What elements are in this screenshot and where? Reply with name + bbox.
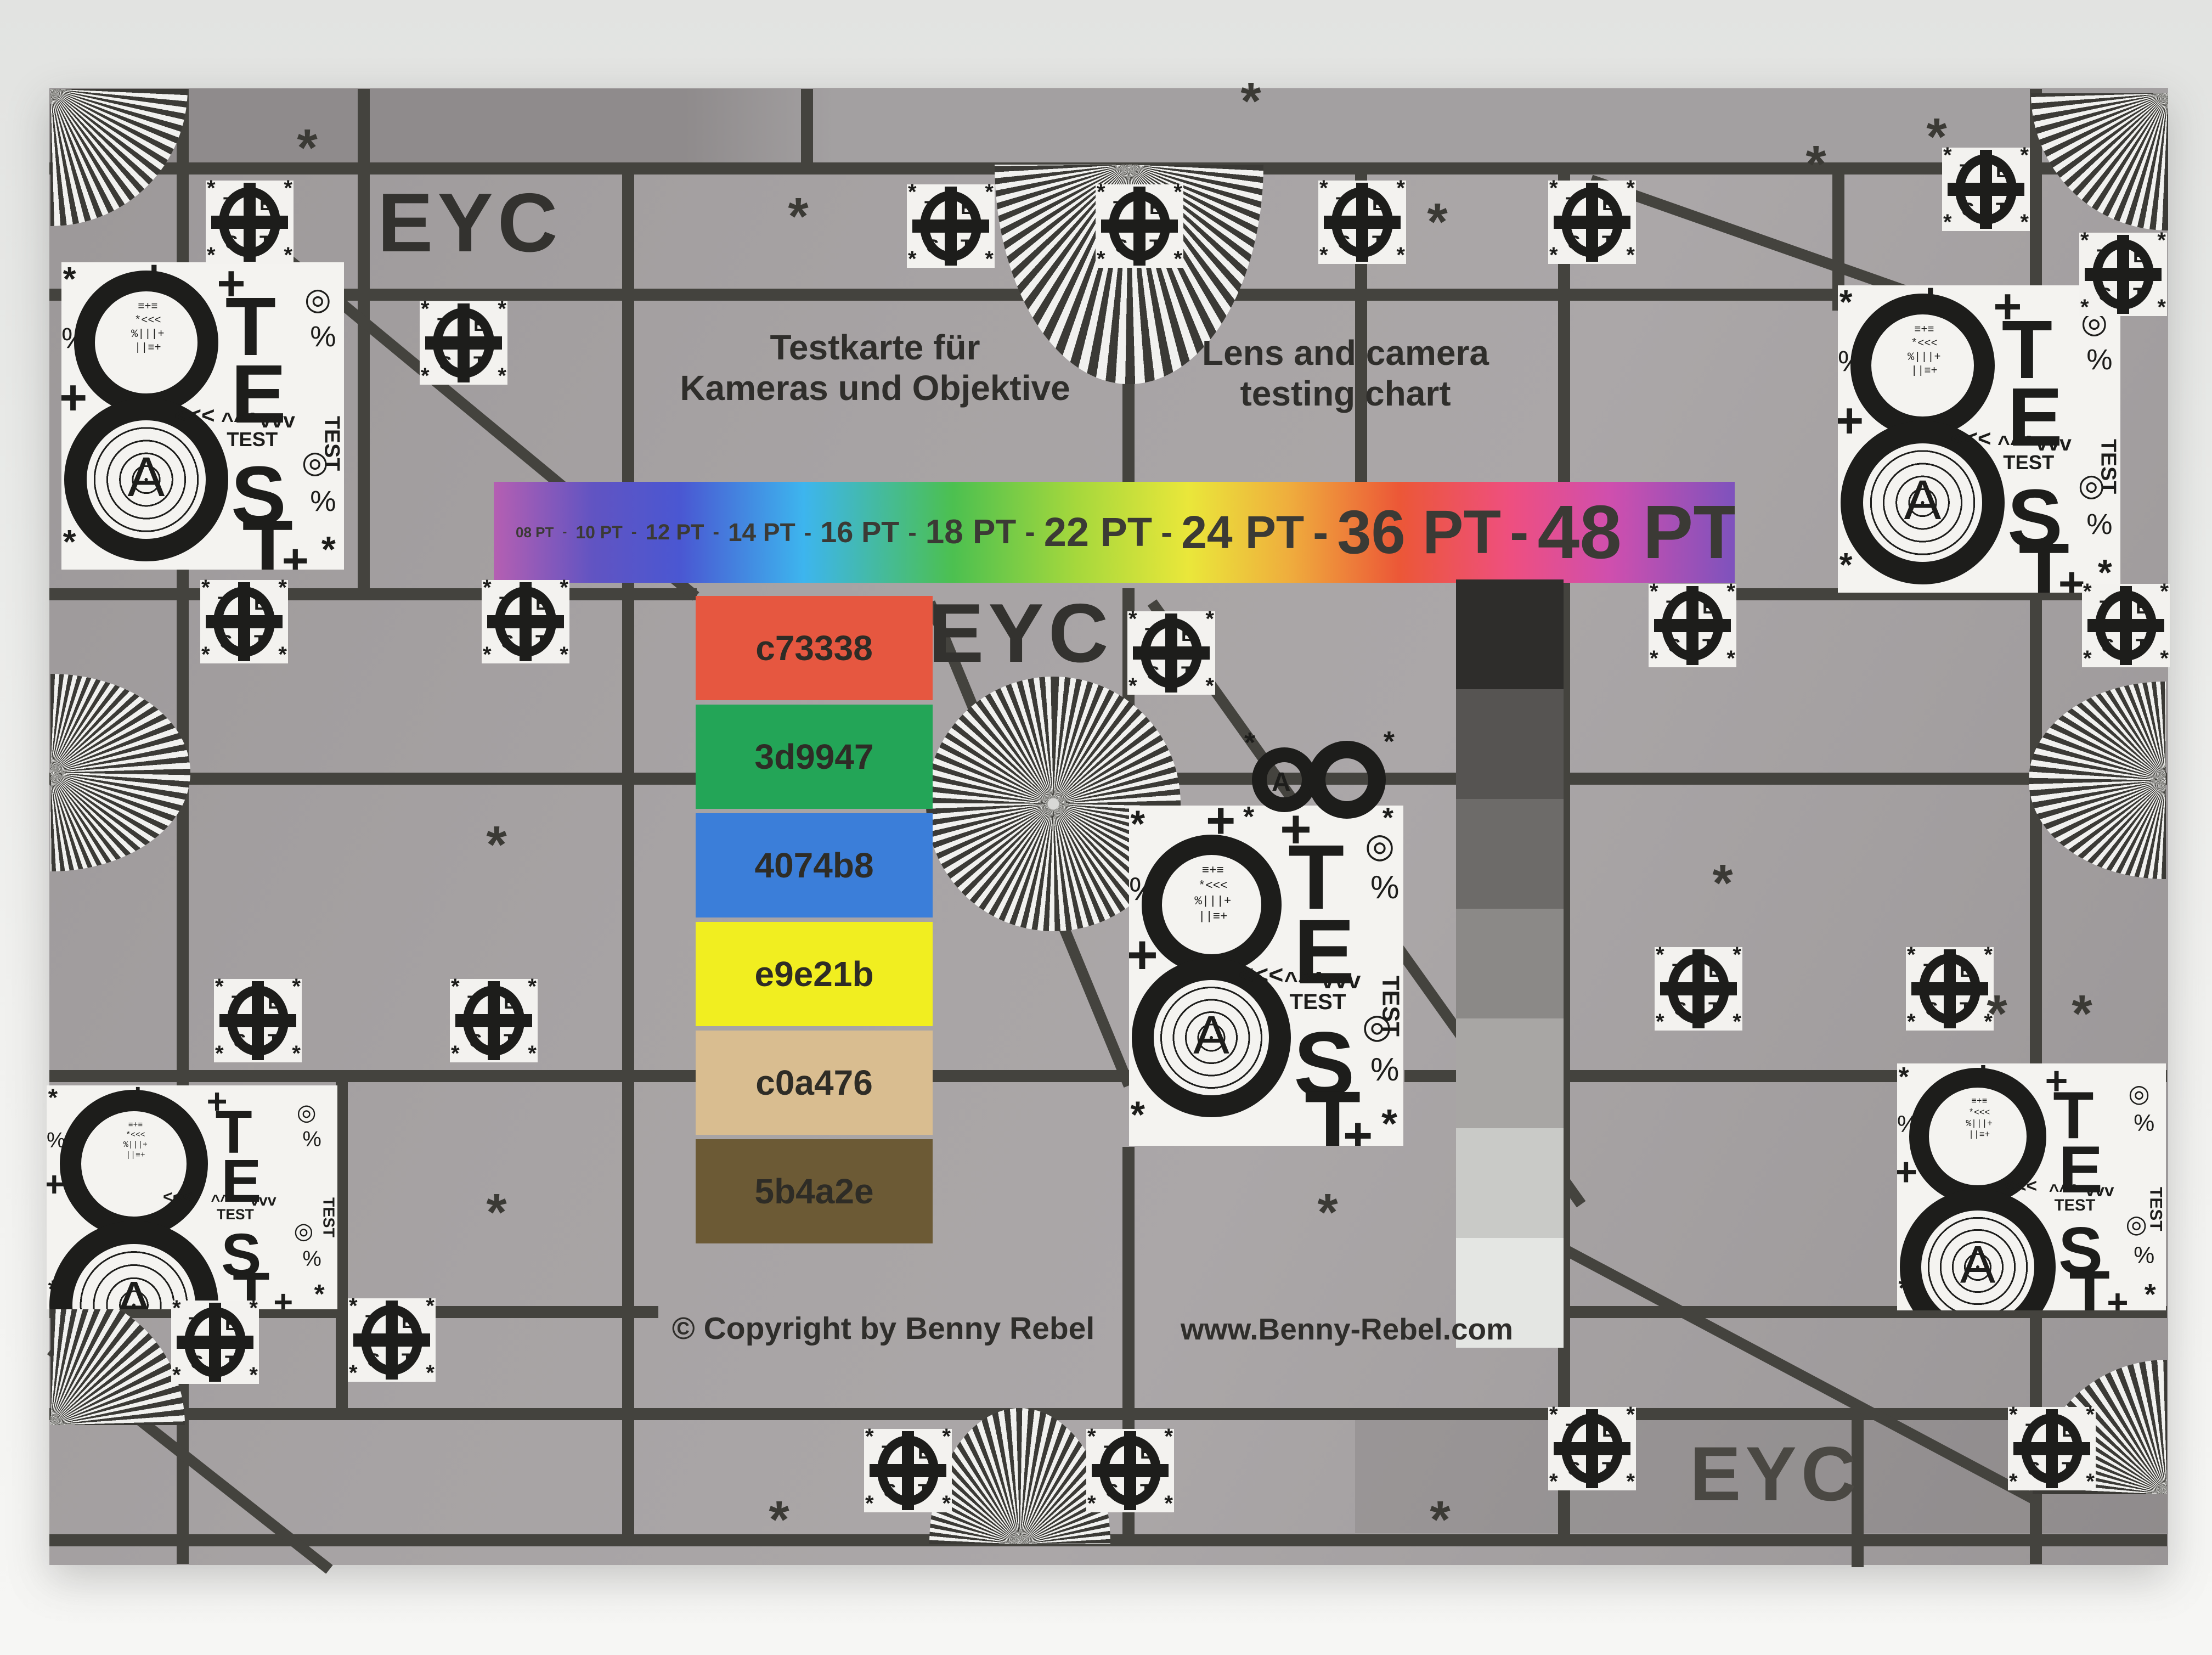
test-circle-marker: TEST**** [2079, 233, 2167, 316]
block-glyph: % [2134, 1112, 2154, 1135]
marker-asterisk: * [215, 976, 224, 998]
marker-asterisk: * [1173, 248, 1182, 270]
grid-line-horizontal [49, 1070, 1130, 1082]
pt-size-label: 24 PT [1181, 509, 1304, 555]
asterisk-mark: * [1240, 75, 1261, 128]
marker-cross-icon [1324, 216, 1401, 229]
title-english-line1: Lens and camera [1097, 333, 1594, 373]
marker-letter: T [1181, 664, 1193, 683]
resolution-scribbles: ≡+≡*<<<%|||+||≡+ [1877, 323, 1971, 379]
eyc-label-top-left: EYC [377, 181, 562, 264]
marker-asterisk: * [528, 976, 537, 998]
test-circle-marker: TEST**** [864, 1429, 952, 1512]
marker-asterisk: * [908, 181, 917, 203]
marker-cross-icon [177, 1336, 253, 1349]
marker-cross-icon [206, 615, 283, 628]
marker-letter: T [232, 993, 243, 1012]
marker-letter: T [2097, 247, 2108, 266]
block-glyph: * [1381, 1104, 1397, 1144]
marker-asterisk: * [215, 1043, 224, 1065]
marker-asterisk: * [1128, 608, 1137, 630]
marker-letter: E [1702, 598, 1715, 617]
marker-cross-icon [1101, 219, 1178, 233]
marker-letter: E [1602, 1421, 1615, 1440]
marker-asterisk: * [292, 1043, 301, 1065]
block-glyph: + [61, 373, 87, 423]
test-circle-marker: TEST**** [1086, 1429, 1174, 1512]
marker-asterisk: * [284, 244, 292, 266]
small-8-asterisk: * [1383, 802, 1393, 835]
pt-separator: - [1313, 509, 1328, 555]
marker-letter: E [2136, 598, 2148, 617]
pt-size-label: 14 PT [728, 520, 795, 545]
letter-a: A [128, 445, 165, 509]
resolution-block-8: *%+*+≡+≡*<<<%|||+||≡+A<<<+T◎%E^^^vvvTEST… [1897, 1063, 2166, 1310]
resolution-scribbles: ≡+≡*<<<%|||+||≡+ [1167, 863, 1259, 925]
marker-asterisk: * [1549, 1404, 1558, 1426]
block-glyph: % [302, 1129, 321, 1151]
marker-cross-icon [1911, 982, 1988, 995]
grayscale-step [1456, 579, 1564, 689]
marker-letter: T [961, 237, 972, 256]
marker-cross-icon [2087, 619, 2164, 632]
block-glyph: ◎ [2128, 1081, 2149, 1106]
block-glyph: TEST [1290, 991, 1346, 1013]
block-glyph: * [2145, 1280, 2156, 1309]
pt-size-label: 10 PT [575, 523, 622, 541]
block-glyph: * [321, 531, 336, 568]
marker-asterisk: * [292, 976, 301, 998]
small-8-letter-a: A [1272, 767, 1291, 797]
block-glyph: % [302, 1249, 321, 1270]
test-circle-marker: TEST**** [907, 184, 995, 268]
block-glyph: % [1370, 1054, 1399, 1087]
marker-letter: T [1708, 1000, 1720, 1018]
test-circle-marker: TEST**** [1649, 584, 1736, 667]
pt-separator: - [562, 526, 567, 539]
pt-size-label: 08 PT [516, 525, 554, 539]
color-swatch: c73338 [696, 596, 933, 700]
block-glyph: <<< [174, 404, 215, 427]
marker-asterisk: * [1726, 581, 1735, 603]
website-text: www.Benny-Rebel.com [1073, 1311, 1621, 1347]
block-glyph: <<< [2005, 1177, 2037, 1196]
resolution-block-8: *%+*+≡+≡*<<<%|||+||≡+A<<<+T◎%E^^^vvvTEST… [1838, 285, 2120, 593]
marker-cross-icon [1948, 183, 2024, 196]
marker-letter: T [225, 1353, 236, 1372]
test-circle-marker: TEST**** [1127, 611, 1215, 695]
marker-cross-icon [353, 1333, 430, 1347]
marker-asterisk: * [1205, 675, 1214, 697]
marker-letter: S [1962, 200, 1974, 219]
vertical-test-word: TEST [321, 416, 342, 471]
marker-asterisk: * [2083, 648, 2092, 669]
marker-asterisk: * [498, 365, 506, 387]
marker-asterisk: * [1319, 177, 1328, 199]
marker-asterisk: * [1396, 177, 1405, 199]
asterisk-mark: * [1427, 196, 1447, 249]
pt-separator: - [1025, 517, 1035, 548]
marker-asterisk: * [1128, 675, 1137, 697]
marker-cross-icon [1654, 619, 1731, 632]
marker-asterisk: * [1319, 244, 1328, 266]
block-glyph: ◎ [2126, 1212, 2147, 1236]
small-8-loop [1308, 741, 1386, 819]
marker-letter: T [1602, 233, 1613, 252]
marker-cross-icon [912, 219, 989, 233]
block-glyph: % [310, 487, 336, 516]
marker-asterisk: * [1549, 177, 1558, 199]
small-8-asterisk: * [1244, 727, 1255, 759]
marker-letter: S [234, 1032, 246, 1050]
marker-letter: T [1702, 637, 1714, 655]
marker-letter: S [470, 1032, 482, 1050]
test-circle-marker: TEST**** [171, 1301, 259, 1384]
marker-letter: S [1115, 237, 1128, 256]
block-glyph: TEST [217, 1207, 254, 1222]
marker-asterisk: * [1650, 581, 1658, 603]
marker-letter: E [225, 1315, 238, 1333]
title-german: Testkarte für Kameras und Objektive [625, 327, 1125, 408]
marker-cross-icon [219, 1014, 296, 1027]
marker-asterisk: * [1087, 1493, 1096, 1515]
marker-asterisk: * [1626, 1404, 1635, 1426]
block-glyph: + [1343, 1110, 1373, 1146]
test-circle-marker: TEST**** [1906, 947, 1994, 1031]
marker-letter: T [2025, 1421, 2037, 1440]
block-glyph: ◎ [304, 284, 331, 314]
test-circle-marker: TEST**** [200, 580, 288, 663]
color-swatch: 5b4a2e [696, 1139, 933, 1243]
marker-asterisk: * [985, 181, 994, 203]
marker-letter: S [225, 233, 238, 252]
marker-asterisk: * [349, 1295, 358, 1317]
marker-cross-icon [2013, 1442, 2090, 1455]
marker-letter: S [191, 1353, 204, 1372]
block-glyph: + [282, 537, 309, 570]
marker-asterisk: * [426, 1295, 435, 1317]
marker-cross-icon [2085, 268, 2162, 281]
marker-letter: T [1672, 961, 1684, 980]
swatch-hex-label: 3d9947 [754, 736, 873, 777]
pt-separator: - [1161, 515, 1172, 550]
marker-letter: T [1104, 1443, 1115, 1462]
block-glyph: + [2058, 560, 2085, 593]
marker-asterisk: * [172, 1364, 181, 1386]
marker-asterisk: * [249, 1364, 258, 1386]
title-english: Lens and camera testing chart [1097, 333, 1594, 414]
marker-letter: E [918, 1443, 930, 1462]
marker-asterisk: * [201, 644, 210, 666]
color-swatch: c0a476 [696, 1031, 933, 1135]
asterisk-mark: * [486, 1186, 506, 1239]
marker-asterisk: * [2080, 296, 2089, 318]
marker-asterisk: * [172, 1297, 181, 1319]
marker-letter: T [1923, 961, 1935, 980]
marker-letter: E [1708, 961, 1721, 980]
marker-asterisk: * [1173, 181, 1182, 203]
marker-asterisk: * [249, 1297, 258, 1319]
marker-asterisk: * [284, 177, 292, 199]
pt-size-label: 18 PT [926, 515, 1016, 549]
block-glyph: * [1839, 548, 1853, 582]
block-glyph: * [63, 262, 76, 296]
grayscale-step [1456, 909, 1564, 1018]
marker-letter: S [2028, 1460, 2040, 1478]
marker-asterisk: * [1733, 944, 1741, 966]
grayscale-step [1456, 1018, 1564, 1128]
swatch-hex-label: 5b4a2e [754, 1171, 873, 1212]
block-glyph: <<< [1239, 962, 1283, 988]
eyc-label-center: EYC [928, 592, 1113, 675]
marker-asterisk: * [1549, 244, 1558, 266]
block-glyph: + [273, 1286, 293, 1309]
marker-letter: T [1996, 200, 2007, 219]
block-glyph: * [1131, 806, 1145, 843]
marker-asterisk: * [278, 577, 287, 599]
resolution-block-8: *%+*+≡+≡*<<<%|||+||≡+A<<<+T◎%E^^^vvvTEST… [61, 262, 344, 570]
marker-letter: T [1113, 199, 1125, 217]
grid-line-horizontal [49, 1408, 2167, 1420]
marker-letter: E [402, 1313, 414, 1331]
marker-asterisk: * [451, 1043, 460, 1065]
marker-letter: T [2062, 1460, 2073, 1478]
swatch-hex-label: c73338 [755, 628, 873, 668]
grayscale-step [1456, 689, 1564, 799]
marker-asterisk: * [278, 644, 287, 666]
test-circle-marker: TEST**** [2008, 1407, 2096, 1490]
marker-asterisk: * [528, 1043, 537, 1065]
marker-asterisk: * [985, 248, 994, 270]
marker-letter: S [927, 237, 939, 256]
block-glyph: * [1898, 1063, 1909, 1091]
test-circle-marker: TEST**** [1655, 947, 1742, 1031]
marker-letter: T [254, 633, 266, 651]
marker-asterisk: * [2160, 581, 2169, 603]
marker-letter: T [2133, 285, 2145, 304]
vertical-test-word: TEST [320, 1197, 336, 1237]
test-circle-marker: TEST**** [1548, 1407, 1636, 1490]
block-glyph: * [1839, 285, 1853, 319]
marker-letter: S [1338, 233, 1351, 252]
marker-letter: T [1140, 1482, 1152, 1500]
block-glyph: % [2086, 345, 2112, 374]
marker-asterisk: * [349, 1362, 358, 1384]
marker-letter: E [1372, 195, 1385, 213]
marker-letter: T [437, 316, 449, 334]
marker-letter: S [1926, 1000, 1938, 1018]
block-glyph: % [310, 322, 336, 351]
letter-a: A [1193, 1004, 1229, 1066]
block-glyph: * [314, 1281, 325, 1308]
marker-asterisk: * [865, 1493, 874, 1515]
marker-letter: E [1149, 199, 1162, 217]
marker-cross-icon [487, 615, 564, 628]
pt-separator: - [1510, 504, 1528, 561]
marker-letter: T [268, 1032, 279, 1050]
marker-letter: S [1674, 1000, 1687, 1018]
marker-asterisk: * [1087, 1426, 1096, 1448]
grid-line-vertical [801, 89, 813, 166]
block-glyph: * [1131, 1096, 1145, 1134]
marker-cross-icon [870, 1464, 946, 1477]
grayscale-step [1456, 1128, 1564, 1238]
concentric-rings-a: A [1159, 986, 1263, 1090]
marker-letter: T [259, 233, 271, 252]
concentric-rings-a: A [1869, 449, 1977, 556]
marker-letter: E [504, 993, 516, 1012]
marker-cross-icon [1133, 646, 1210, 660]
block-glyph: % [2134, 1244, 2154, 1268]
marker-letter: T [882, 1443, 893, 1462]
marker-asterisk: * [483, 577, 492, 599]
asterisk-mark: * [1926, 111, 1946, 164]
marker-letter: E [1960, 961, 1972, 980]
marker-letter: E [1181, 626, 1194, 644]
test-circle-marker: TEST**** [214, 979, 302, 1062]
marker-letter: T [918, 1482, 929, 1500]
marker-letter: S [1568, 1460, 1581, 1478]
marker-asterisk: * [207, 177, 216, 199]
marker-asterisk: * [1396, 244, 1405, 266]
pt-separator: - [631, 524, 637, 541]
marker-asterisk: * [207, 244, 216, 266]
marker-letter: T [2136, 637, 2147, 655]
letter-a: A [1960, 1234, 1996, 1295]
marker-letter: S [439, 354, 452, 373]
marker-asterisk: * [560, 577, 568, 599]
marker-asterisk: * [421, 365, 430, 387]
marker-cross-icon [1660, 982, 1737, 995]
marker-asterisk: * [908, 248, 917, 270]
marker-asterisk: * [1626, 1471, 1635, 1493]
marker-asterisk: * [1656, 944, 1664, 966]
marker-asterisk: * [1943, 211, 1952, 233]
marker-asterisk: * [1097, 181, 1105, 203]
marker-asterisk: * [2020, 211, 2029, 233]
marker-letter: T [1145, 626, 1156, 644]
marker-letter: E [268, 993, 280, 1012]
marker-letter: T [535, 633, 547, 651]
marker-letter: T [1602, 1460, 1613, 1478]
pt-separator: - [908, 520, 917, 545]
asterisk-mark: * [1805, 138, 1826, 191]
marker-letter: E [535, 594, 548, 613]
block-glyph: TEST [227, 430, 278, 449]
block-glyph: + [2107, 1285, 2128, 1310]
marker-asterisk: * [2160, 648, 2169, 669]
marker-letter: S [2099, 285, 2112, 304]
marker-cross-icon [1554, 216, 1630, 229]
block-glyph: ◎ [294, 1220, 314, 1242]
marker-letter: T [223, 195, 235, 213]
marker-letter: T [365, 1313, 377, 1331]
marker-letter: T [1960, 162, 1971, 181]
asterisk-mark: * [486, 819, 506, 871]
pt-size-label: 36 PT [1337, 502, 1501, 563]
marker-cross-icon [425, 336, 502, 350]
marker-letter: E [259, 195, 272, 213]
block-glyph: ◎ [297, 1101, 317, 1124]
marker-asterisk: * [2086, 1471, 2095, 1493]
eyc-label-bottom-right: EYC [1690, 1436, 1861, 1512]
marker-letter: T [1336, 195, 1347, 213]
marker-cross-icon [1554, 1442, 1630, 1455]
small-8-figure: A**** [1252, 735, 1389, 826]
grayscale-step [1456, 799, 1564, 909]
marker-letter: T [504, 1032, 515, 1050]
resolution-block-8: *%+*+≡+≡*<<<%|||+||≡+A<<<+T◎%E^^^vvvTEST… [47, 1085, 337, 1309]
marker-asterisk: * [2080, 229, 2089, 251]
digit-8-top-loop [60, 1090, 208, 1238]
marker-letter: T [218, 594, 229, 613]
marker-asterisk: * [2157, 296, 2166, 318]
color-swatch: 3d9947 [696, 705, 933, 809]
marker-asterisk: * [2009, 1404, 2018, 1426]
block-glyph: + [1838, 396, 1864, 446]
pt-separator: - [713, 523, 719, 542]
letter-a: A [1904, 468, 1942, 532]
letter-a: A [115, 1269, 153, 1309]
marker-asterisk: * [1626, 244, 1635, 266]
test-circle-marker: TEST**** [206, 181, 294, 264]
marker-asterisk: * [1733, 1011, 1741, 1033]
color-swatch: 4074b8 [696, 813, 933, 917]
block-glyph: <<< [163, 1189, 193, 1206]
title-german-line1: Testkarte für [625, 327, 1125, 368]
marker-asterisk: * [1205, 608, 1214, 630]
test-circle-marker: TEST**** [348, 1298, 436, 1382]
marker-letter: E [473, 316, 486, 334]
marker-letter: E [254, 594, 267, 613]
marker-letter: S [1668, 637, 1681, 655]
marker-letter: S [368, 1351, 380, 1370]
marker-letter: T [924, 199, 936, 217]
resolution-scribbles: ≡+≡*<<<%|||+||≡+ [101, 300, 195, 356]
grid-line-vertical [358, 89, 370, 588]
marker-letter: S [1147, 664, 1160, 683]
marker-asterisk: * [426, 1362, 435, 1384]
marker-letter: E [2062, 1421, 2074, 1440]
marker-letter: E [1602, 195, 1615, 213]
marker-letter: T [467, 993, 479, 1012]
marker-letter: E [1140, 1443, 1153, 1462]
marker-letter: S [220, 633, 233, 651]
marker-asterisk: * [1656, 1011, 1664, 1033]
resolution-scribbles: ≡+≡*<<<%|||+||≡+ [87, 1121, 184, 1161]
marker-letter: T [1566, 195, 1577, 213]
marker-letter: T [473, 354, 485, 373]
marker-letter: S [1568, 233, 1581, 252]
marker-asterisk: * [1164, 1426, 1173, 1448]
pt-size-label: 12 PT [646, 521, 704, 543]
marker-asterisk: * [2086, 1404, 2095, 1426]
marker-asterisk: * [1907, 1011, 1916, 1033]
font-size-bar: 08 PT-10 PT-12 PT-14 PT-16 PT-18 PT-22 P… [494, 482, 1735, 583]
vertical-test-word: TEST [1378, 976, 1402, 1037]
marker-letter: T [499, 594, 511, 613]
block-glyph: % [1370, 872, 1399, 904]
vertical-test-word: TEST [2097, 439, 2119, 494]
marker-letter: T [1149, 237, 1161, 256]
marker-asterisk: * [1907, 944, 1916, 966]
test-circle-marker: TEST**** [2082, 584, 2170, 667]
block-glyph: <<< [1951, 427, 1991, 450]
small-8-asterisk: * [1243, 801, 1254, 834]
marker-letter: S [1106, 1482, 1119, 1500]
marker-letter: T [402, 1351, 413, 1370]
marker-asterisk: * [942, 1493, 951, 1515]
